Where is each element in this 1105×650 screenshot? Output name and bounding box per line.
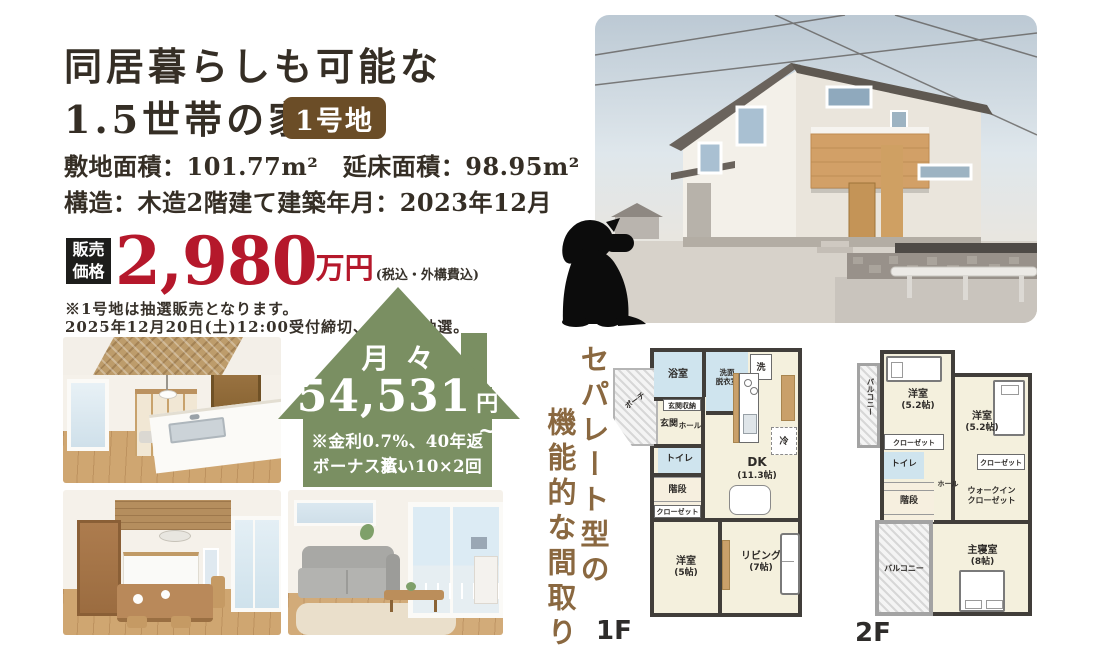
1f-wall [654, 518, 798, 522]
ceiling-wood-accent [115, 500, 231, 530]
floor-label-1f: 1F [596, 616, 632, 646]
2f-master-bed [959, 570, 1005, 612]
high-window [294, 500, 376, 526]
1f-bedroom-label: 洋室(5帖) [661, 555, 711, 580]
pendant-lamp [159, 390, 177, 399]
monthly-payment-house-graphic: 月々 54,531 円~ ※金利0.7%、40年返済、 ボーナス払い10×2回 [278, 287, 520, 487]
price-tax-note: (税込・外構費込) [376, 264, 479, 283]
price-label-top: 販売 [66, 239, 111, 261]
photo-exterior-house [595, 15, 1037, 323]
photo-interior-kitchen [63, 337, 281, 483]
cushion-divider [346, 570, 348, 594]
spec-area-line: 敷地面積：101.77m² 延床面積：98.95m² [64, 147, 580, 182]
price-unit: 万円 [316, 245, 374, 287]
distant-building [471, 537, 487, 549]
dog-silhouette-icon [546, 218, 654, 328]
herringbone-ceiling [93, 337, 243, 375]
round-ceiling-lamp [159, 530, 191, 542]
coffee-table [384, 590, 444, 600]
pillow [891, 362, 903, 378]
monthly-terms-2: ボーナス払い10×2回 [303, 453, 492, 477]
1f-porch-label: ポーチ [618, 386, 653, 414]
2f-side-balcony-label: バルコニー [865, 378, 876, 416]
price-label-bottom: 価格 [66, 261, 111, 283]
hanging-plant [360, 524, 374, 540]
2f-balcony: バルコニー [875, 520, 933, 616]
price-amount: 2,980 [115, 231, 317, 292]
table-leg [434, 600, 437, 612]
1f-kitchen-counter [739, 373, 759, 443]
stove-burner [744, 379, 752, 387]
exterior-house-art [595, 15, 1037, 323]
1f-toilet-label: トイレ [658, 454, 701, 466]
1f-dk-label: DK (11.3帖) [731, 455, 783, 482]
chair [127, 616, 147, 628]
dining-window [231, 516, 281, 612]
1f-cupboard [781, 375, 795, 421]
pillow [986, 600, 1003, 609]
table-plant [406, 582, 416, 591]
window-mullion [253, 520, 255, 608]
2f-closet-right: クローゼット [977, 454, 1025, 470]
brown-door [77, 520, 121, 616]
1f-hall-label: ホール [677, 421, 703, 430]
sofa-seat [298, 568, 398, 598]
main-title-line1: 同居暮らしも可能な [64, 36, 442, 91]
1f-fridge: 冷 [771, 427, 797, 455]
2f-toilet: トイレ [884, 452, 924, 479]
photo-interior-dining [63, 490, 281, 635]
2f-bed-left [886, 356, 942, 382]
floorplan-1f: ポーチ 浴室 洗面脱衣室 洗 玄関収納 玄関 ホール トイレ 階段 クローゼット [613, 335, 830, 632]
pillow [1001, 385, 1019, 395]
pendant-stem [166, 375, 168, 391]
2f-side-balcony: バルコニー [857, 363, 880, 448]
plate [161, 590, 170, 599]
table-leg [390, 600, 393, 612]
photo-interior-living [288, 490, 503, 635]
flyer-canvas: 同居暮らしも可能な 1.5世帯の家 1号地 敷地面積：101.77m² 延床面積… [0, 0, 1105, 650]
sofa-cushion-line [782, 561, 794, 562]
2f-bedroom1-label: 洋室(5.2帖) [893, 388, 943, 413]
kitchen-sink [168, 417, 226, 444]
spec-structure-line: 構造：木造2階建て建築年月：2023年12月 [64, 183, 552, 218]
2f-toilet-label: トイレ [884, 459, 924, 470]
chair [171, 616, 191, 628]
1f-toilet: トイレ [658, 448, 701, 473]
1f-stairs: 階段 [654, 477, 701, 505]
1f-entrance-storage: 玄関収納 [663, 399, 701, 411]
1f-tv-board [722, 540, 730, 590]
main-title-line2: 1.5世帯の家 [64, 89, 310, 144]
1f-porch: ポーチ [613, 368, 658, 446]
2f-balcony-label: バルコニー [879, 564, 929, 574]
1f-dining-table [729, 485, 771, 515]
2f-stairs-label: 階段 [884, 496, 934, 508]
1f-closet: クローゼット [654, 505, 701, 518]
catchcopy-line2: 機能的な間取り [539, 407, 581, 650]
price-label-box: 販売 価格 [66, 238, 111, 284]
monthly-amount: 54,531 [297, 375, 471, 419]
kitchen-sink-plan [743, 414, 757, 434]
price-block: 販売 価格 2,980 万円 (税込・外構費込) [66, 231, 479, 292]
2f-wic-label: ウォークインクローゼット [955, 486, 1028, 505]
kitchen-window [67, 379, 109, 451]
lot-number-badge: 1号地 [283, 97, 386, 139]
floorplan-2f: バルコニー 洋室(5.2帖) 洋室(5.2帖) クローゼット トイレ クローゼッ… [855, 348, 1075, 620]
chair-back [211, 576, 225, 608]
floor-label-2f: 2F [855, 618, 891, 648]
2f-stairs: 階段 [884, 482, 934, 522]
1f-bath-label: 浴室 [654, 368, 702, 381]
plate [133, 594, 143, 604]
2f-bedroom2-label: 洋室(5.2帖) [957, 410, 1007, 435]
2f-closet-left: クローゼット [884, 434, 944, 450]
pillow [965, 600, 982, 609]
1f-bath: 浴室 [654, 352, 702, 397]
1f-sofa [780, 533, 800, 595]
stove-burner [750, 387, 758, 395]
2f-master-label: 主寝室(8帖) [955, 544, 1010, 569]
1f-wall [701, 397, 705, 518]
1f-stairs-label: 階段 [654, 485, 701, 497]
leaning-art-frame [474, 556, 498, 604]
